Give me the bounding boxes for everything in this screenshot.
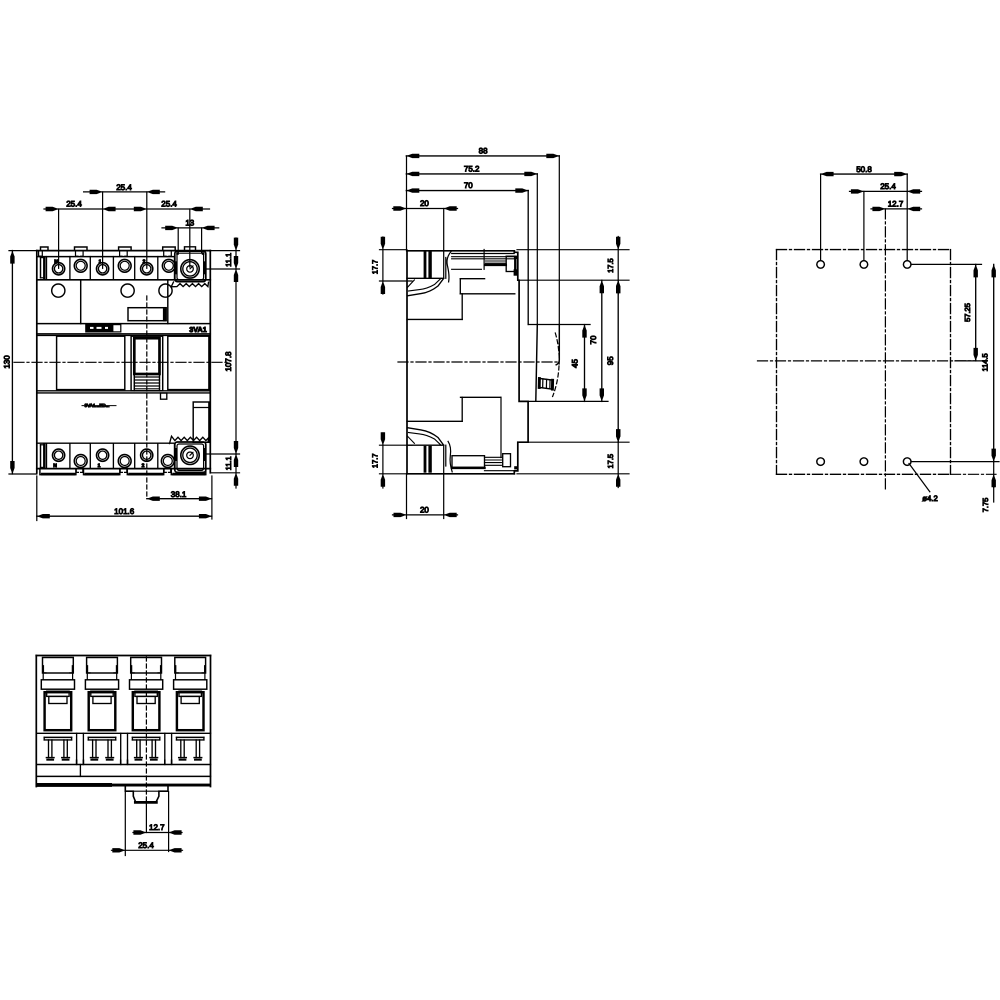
svg-text:20: 20 xyxy=(420,199,429,208)
svg-text:25.4: 25.4 xyxy=(116,183,132,192)
svg-text:2: 2 xyxy=(143,259,146,265)
svg-text:107.8: 107.8 xyxy=(224,351,233,372)
svg-text:ø4.2: ø4.2 xyxy=(922,494,938,503)
svg-text:38.1: 38.1 xyxy=(171,490,187,499)
svg-text:88: 88 xyxy=(479,146,488,155)
svg-text:1: 1 xyxy=(98,463,101,469)
svg-text:13: 13 xyxy=(185,219,194,228)
svg-text:N: N xyxy=(53,463,57,469)
svg-text:25.4: 25.4 xyxy=(880,182,896,191)
svg-text:17.5: 17.5 xyxy=(606,258,615,273)
svg-text:1: 1 xyxy=(99,259,102,265)
svg-text:17.5: 17.5 xyxy=(606,454,615,469)
svg-text:17.7: 17.7 xyxy=(371,453,380,468)
svg-text:25.4: 25.4 xyxy=(66,200,82,209)
svg-text:11.1: 11.1 xyxy=(224,253,233,267)
svg-text:75.2: 75.2 xyxy=(464,164,480,173)
svg-text:3VA1: 3VA1 xyxy=(189,325,206,334)
svg-text:17.7: 17.7 xyxy=(371,260,380,275)
svg-text:101.6: 101.6 xyxy=(114,507,135,516)
svg-text:2: 2 xyxy=(142,463,145,469)
svg-text:45: 45 xyxy=(571,359,580,368)
svg-text:11.1: 11.1 xyxy=(224,456,233,470)
svg-text:57.25: 57.25 xyxy=(963,303,972,322)
svg-text:50.8: 50.8 xyxy=(856,165,872,174)
svg-text:N: N xyxy=(54,259,58,265)
svg-text:70: 70 xyxy=(464,181,473,190)
svg-text:95: 95 xyxy=(606,356,615,365)
svg-text:130: 130 xyxy=(2,355,11,369)
svg-text:7.75: 7.75 xyxy=(981,498,990,513)
svg-text:12.7: 12.7 xyxy=(149,823,165,832)
svg-text:114.5: 114.5 xyxy=(981,353,990,371)
svg-text:25.4: 25.4 xyxy=(138,841,154,850)
svg-text:12.7: 12.7 xyxy=(888,200,904,209)
svg-text:70: 70 xyxy=(589,335,598,344)
svg-text:25.4: 25.4 xyxy=(161,200,177,209)
svg-text:20: 20 xyxy=(420,506,429,515)
